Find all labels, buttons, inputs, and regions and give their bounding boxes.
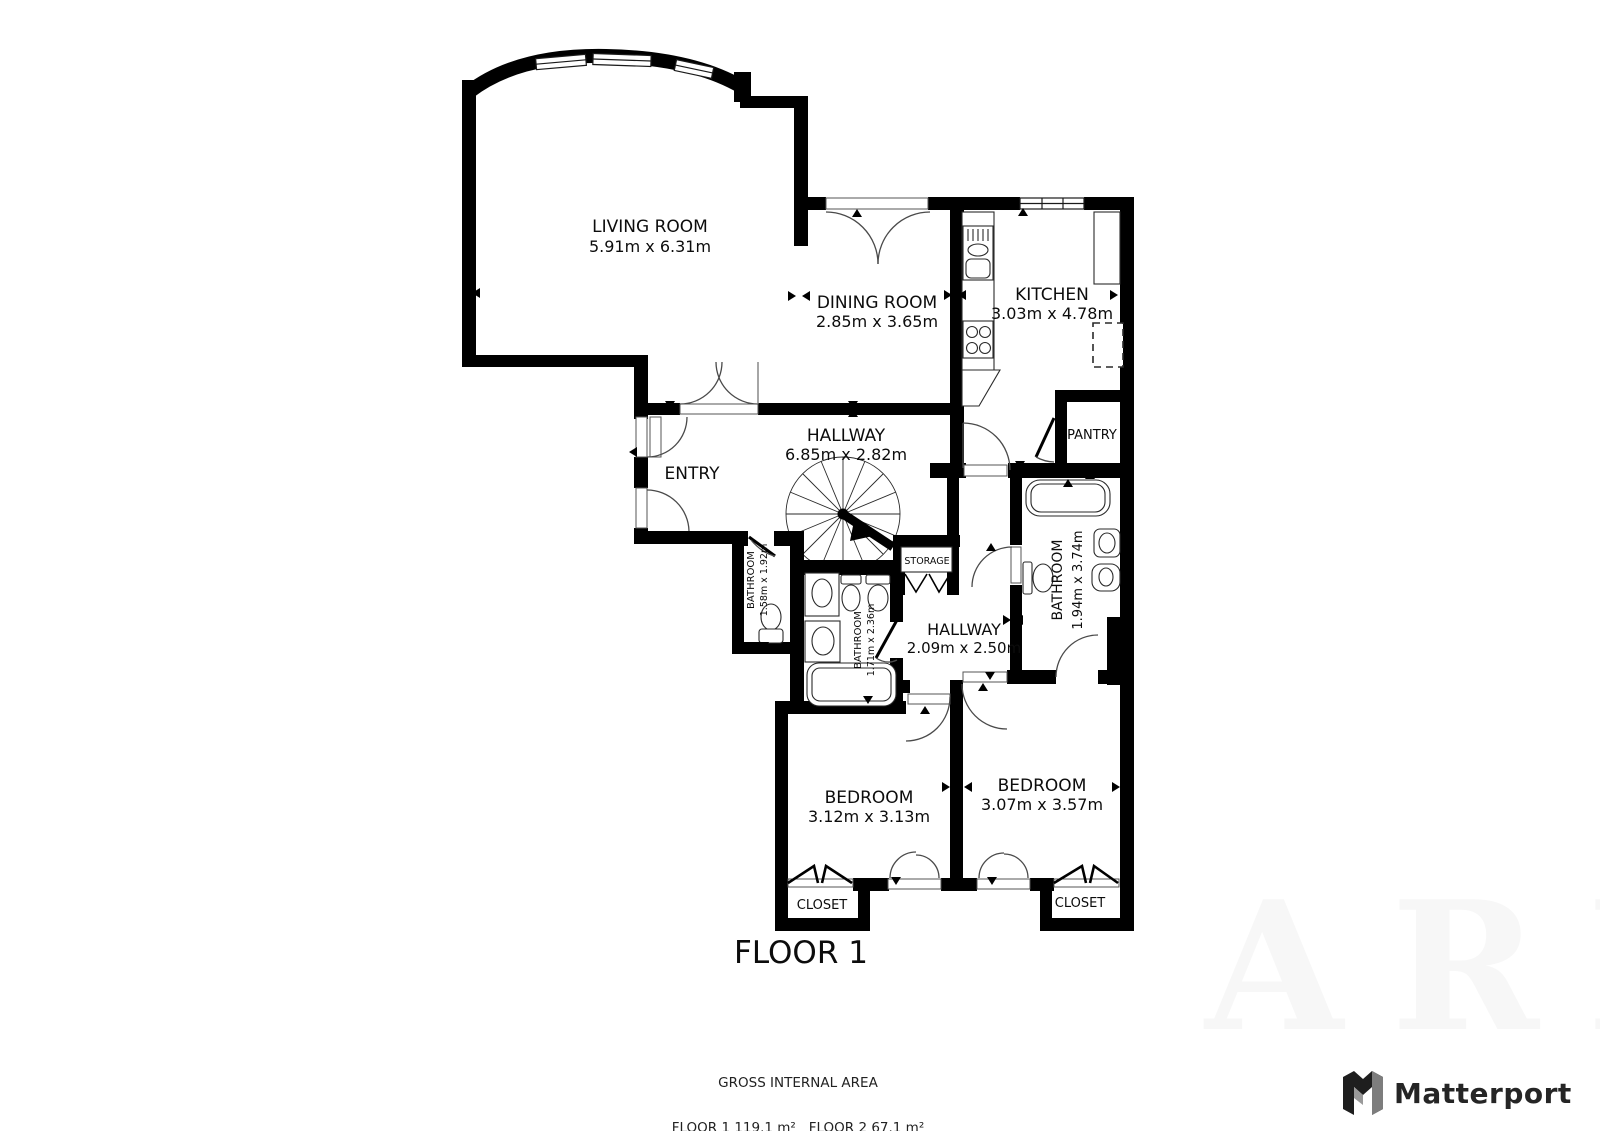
svg-text:BEDROOM: BEDROOM — [998, 776, 1087, 796]
svg-text:PANTRY: PANTRY — [1067, 428, 1117, 443]
room-label-closet-left: CLOSET — [797, 898, 848, 913]
svg-text:6.85m x 2.82m: 6.85m x 2.82m — [785, 445, 907, 464]
svg-text:BATHROOM: BATHROOM — [853, 611, 864, 669]
bathroom-sink-icon — [1094, 529, 1120, 557]
room-label-hallway-main: HALLWAY 6.85m x 2.82m — [785, 426, 907, 464]
svg-text:KITCHEN: KITCHEN — [1015, 285, 1089, 305]
room-label-storage: STORAGE — [904, 556, 949, 567]
svg-text:LIVING ROOM: LIVING ROOM — [592, 217, 708, 237]
toilet-icon — [1023, 562, 1053, 594]
svg-text:1.94m x 3.74m: 1.94m x 3.74m — [1071, 530, 1086, 629]
kitchen-window — [1020, 198, 1084, 209]
stove-icon — [963, 321, 993, 358]
living-room-bay-windows — [536, 53, 714, 78]
room-label-living-room: LIVING ROOM 5.91m x 6.31m — [589, 217, 711, 256]
vanity-sink-icon — [805, 621, 840, 662]
room-label-hallway-small: HALLWAY 2.09m x 2.50m — [907, 620, 1021, 657]
svg-text:1.58m x 1.92m: 1.58m x 1.92m — [759, 544, 770, 616]
svg-text:CLOSET: CLOSET — [1055, 896, 1106, 911]
svg-text:BATHROOM: BATHROOM — [1050, 539, 1066, 620]
area-summary-floors: FLOOR 1 119.1 m² FLOOR 2 67.1 m² — [0, 1121, 1596, 1131]
svg-text:2.09m x 2.50m: 2.09m x 2.50m — [907, 639, 1021, 657]
room-label-bedroom-right: BEDROOM 3.07m x 3.57m — [981, 776, 1103, 814]
svg-text:5.91m x 6.31m: 5.91m x 6.31m — [589, 237, 711, 256]
vanity-sink-icon — [805, 573, 839, 616]
svg-text:BATHROOM: BATHROOM — [746, 551, 757, 609]
svg-text:HALLWAY: HALLWAY — [807, 426, 886, 446]
floor-plan-drawing: LIVING ROOM 5.91m x 6.31m DINING ROOM 2.… — [0, 0, 1600, 1131]
svg-text:ENTRY: ENTRY — [665, 464, 721, 484]
svg-text:STORAGE: STORAGE — [904, 556, 949, 567]
bathtub-icon — [807, 663, 896, 706]
svg-text:BEDROOM: BEDROOM — [825, 788, 914, 808]
window-icon — [593, 53, 651, 66]
room-label-bedroom-left: BEDROOM 3.12m x 3.13m — [808, 788, 930, 826]
svg-text:3.03m x 4.78m: 3.03m x 4.78m — [991, 304, 1113, 323]
toilet-icon — [841, 575, 861, 611]
svg-text:CLOSET: CLOSET — [797, 898, 848, 913]
floor-plan-page: ARE — [0, 0, 1600, 1131]
room-label-pantry: PANTRY — [1067, 428, 1117, 443]
room-label-bathroom-small: BATHROOM 1.58m x 1.92m — [746, 544, 770, 616]
floor-title: FLOOR 1 — [734, 935, 868, 971]
pedestal-sink-icon — [1092, 564, 1120, 591]
svg-text:HALLWAY: HALLWAY — [927, 620, 1001, 639]
svg-text:3.12m x 3.13m: 3.12m x 3.13m — [808, 807, 930, 826]
svg-text:DINING ROOM: DINING ROOM — [817, 293, 937, 313]
matterport-m-icon — [1342, 1070, 1384, 1116]
kitchen-appliance-dashed-icon — [1093, 323, 1123, 367]
svg-text:2.85m x 3.65m: 2.85m x 3.65m — [816, 312, 938, 331]
svg-text:3.07m x 3.57m: 3.07m x 3.57m — [981, 795, 1103, 814]
kitchen-sink-icon — [963, 226, 993, 280]
room-label-dining-room: DINING ROOM 2.85m x 3.65m — [816, 293, 938, 331]
room-label-entry: ENTRY — [665, 464, 721, 484]
svg-text:1.71m x 2.36m: 1.71m x 2.36m — [866, 604, 877, 676]
room-label-closet-right: CLOSET — [1055, 896, 1106, 911]
room-label-bathroom-main: BATHROOM 1.94m x 3.74m — [1050, 530, 1086, 629]
matterport-logo-text: Matterport — [1394, 1077, 1572, 1110]
room-label-kitchen: KITCHEN 3.03m x 4.78m — [991, 285, 1113, 323]
matterport-branding: Matterport — [1342, 1070, 1572, 1116]
